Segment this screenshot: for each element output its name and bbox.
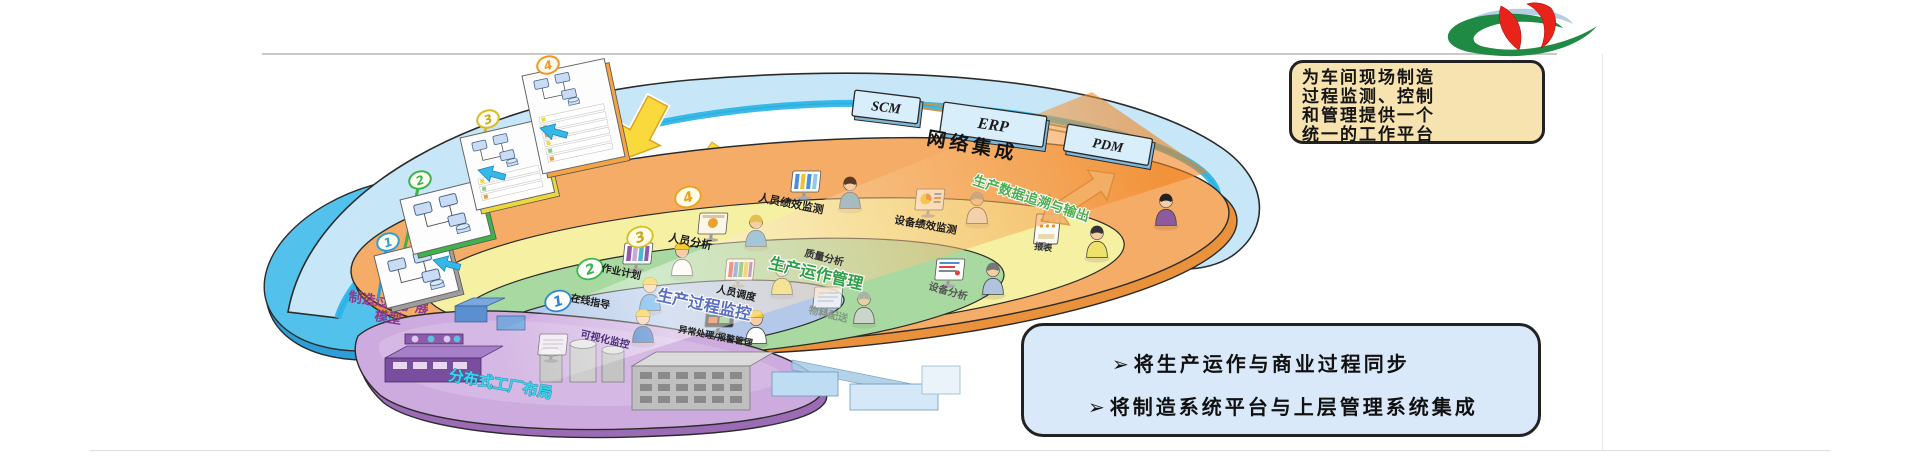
benefit-text: 将制造系统平台与上层管理系统集成	[1110, 395, 1478, 419]
company-logo	[1448, 3, 1597, 56]
platform-callout-line: 统一的工作平台	[1302, 126, 1532, 145]
benefit-item: ➢将生产运作与商业过程同步	[1112, 348, 1538, 377]
benefit-item: ➢将制造系统平台与上层管理系统集成	[1088, 391, 1538, 420]
platform-callout-line: 和管理提供一个	[1302, 107, 1532, 126]
benefit-text: 将生产运作与商业过程同步	[1134, 352, 1410, 376]
mes-layers-diagram: 4 3 2 1 人员绩效监测 设备绩效监测 生产数据追溯与输出 报表 人员分析 …	[0, 0, 1920, 460]
slide-canvas: 4 3 2 1 人员绩效监测 设备绩效监测 生产数据追溯与输出 报表 人员分析 …	[0, 0, 1920, 460]
logo-green-swoosh-icon	[1448, 14, 1597, 56]
platform-callout-line: 为车间现场制造	[1302, 69, 1532, 88]
integration-benefits-callout: ➢将生产运作与商业过程同步 ➢将制造系统平台与上层管理系统集成	[1021, 323, 1541, 437]
platform-callout: 为车间现场制造 过程监测、控制 和管理提供一个 统一的工作平台	[1289, 60, 1545, 144]
platform-callout-line: 过程监测、控制	[1302, 88, 1532, 107]
bullet-arrow-icon: ➢	[1088, 395, 1108, 419]
bullet-arrow-icon: ➢	[1112, 352, 1132, 376]
